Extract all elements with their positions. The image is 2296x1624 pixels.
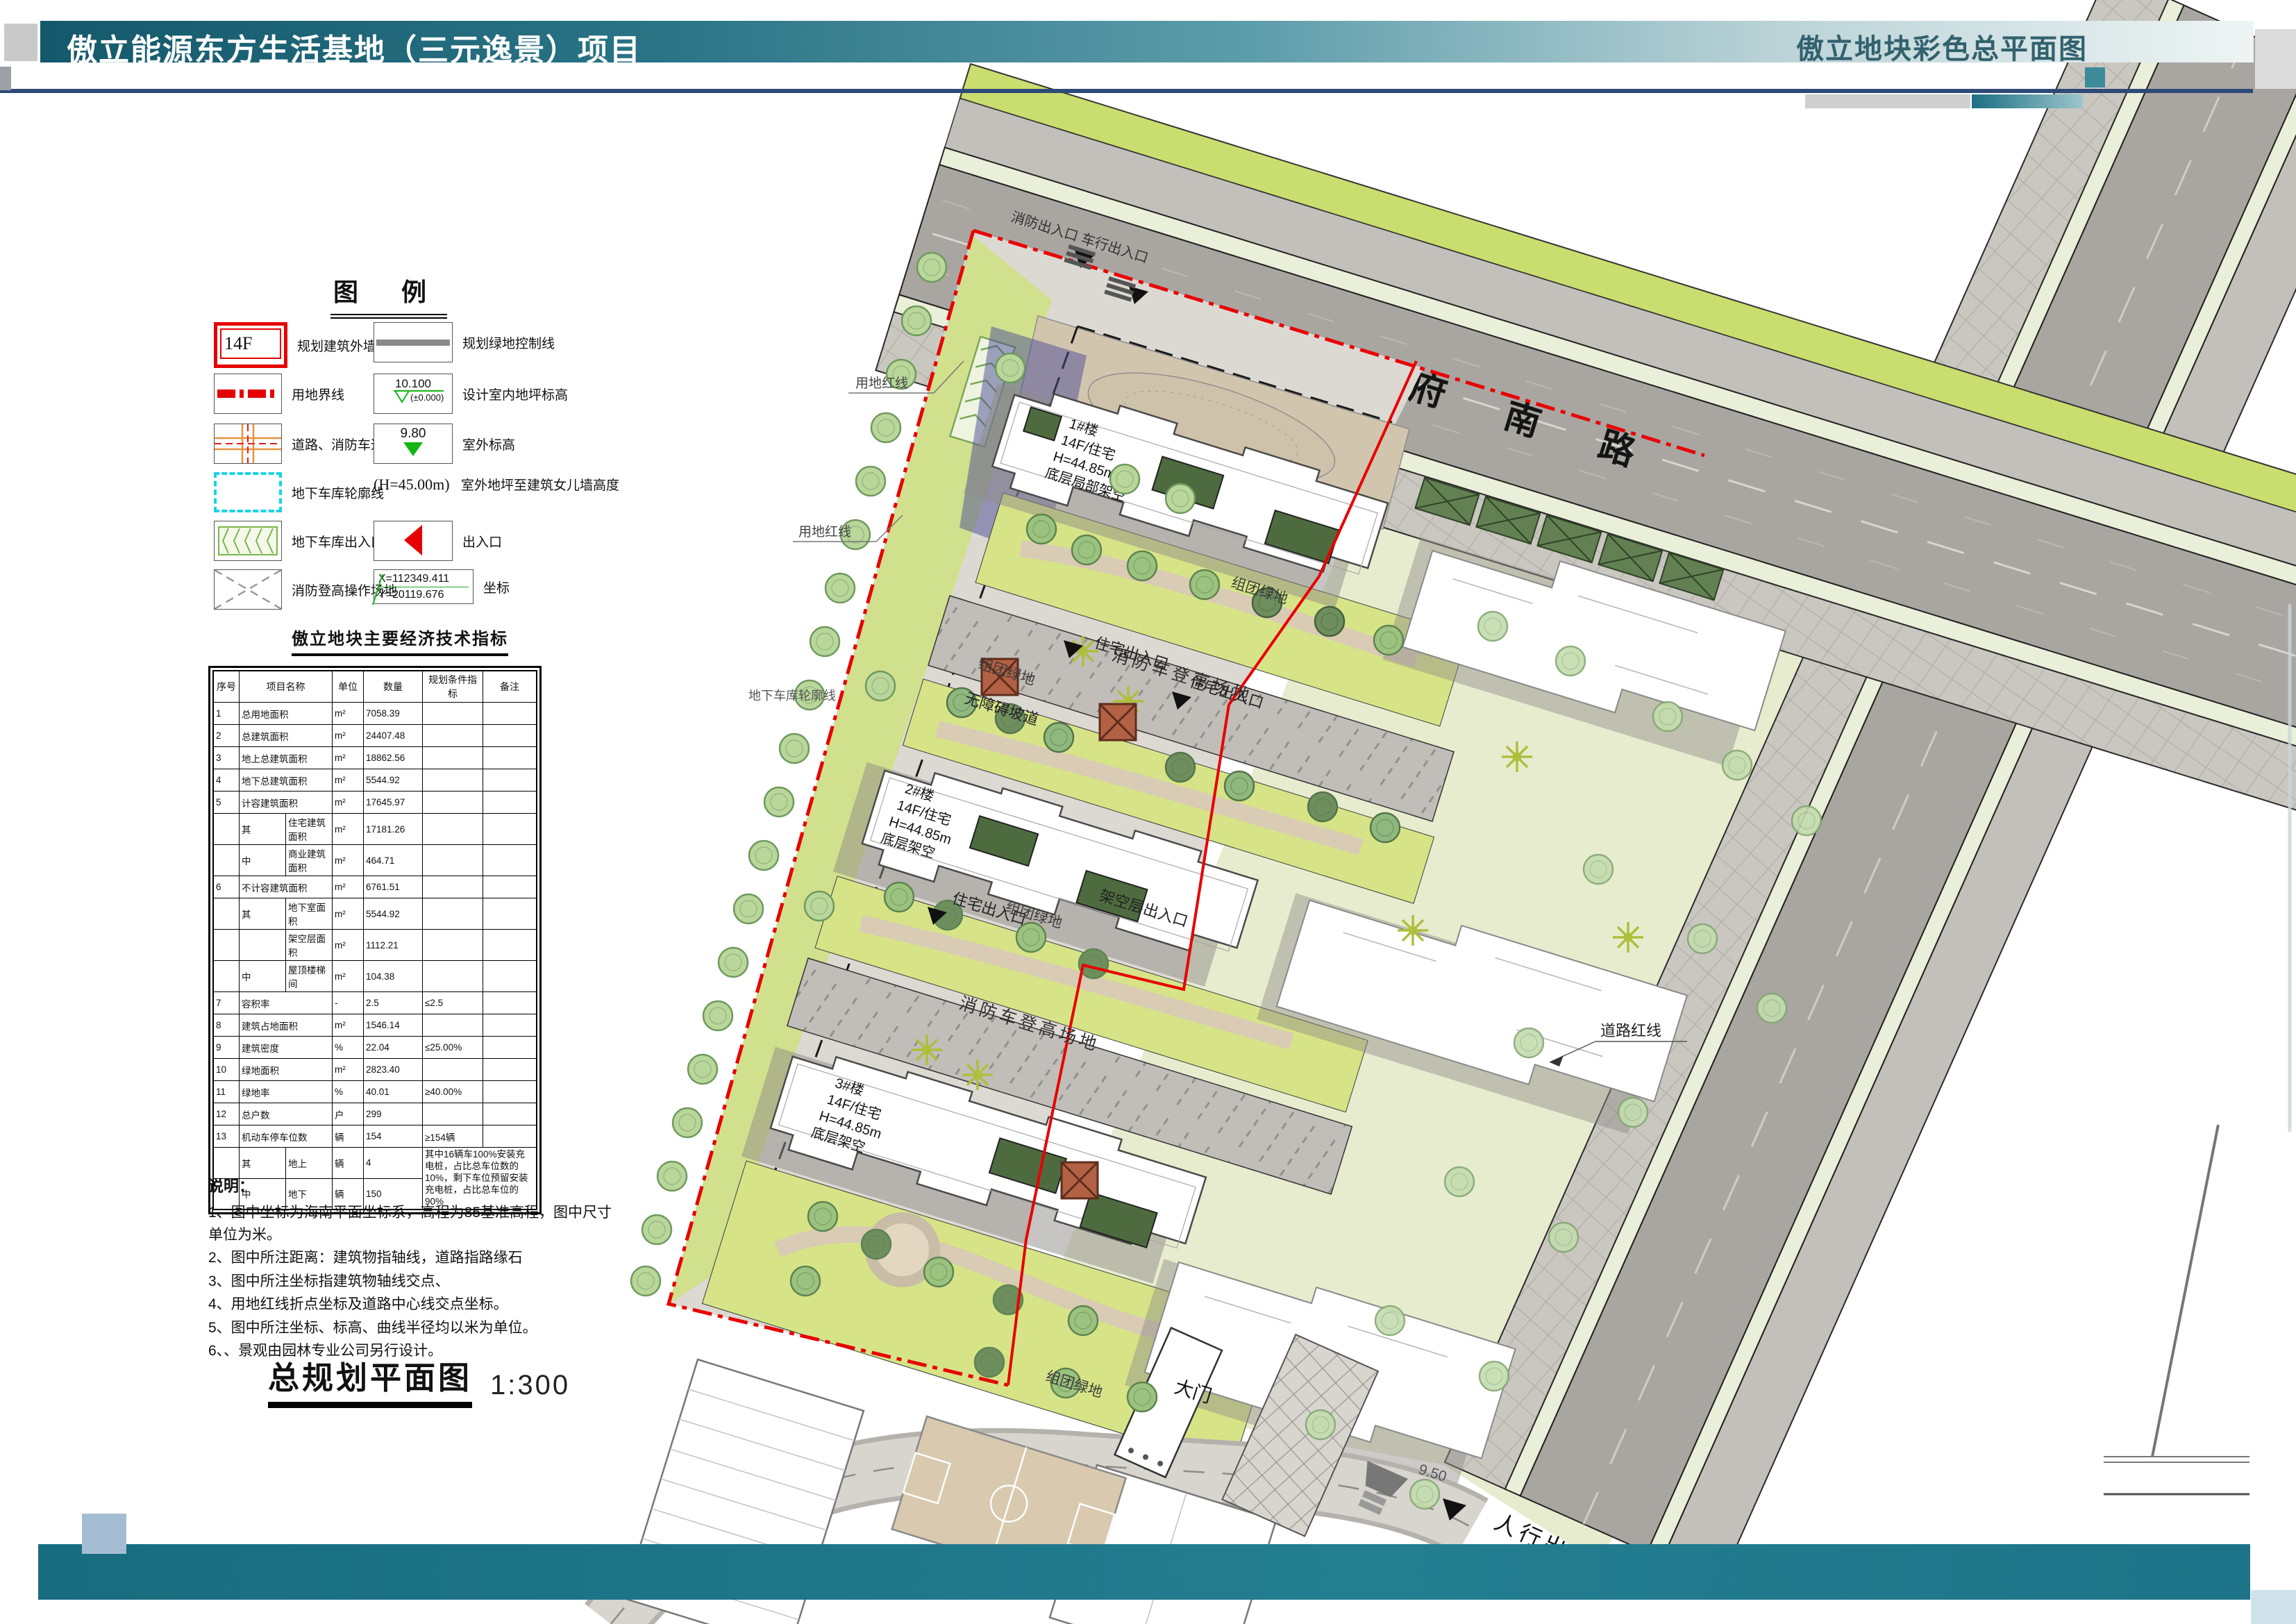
svg-text:(±0.000): (±0.000) <box>410 392 444 403</box>
table-row: 4地下总建筑面积m²5544.92 <box>213 769 537 792</box>
indoor-elevation-swatch: 10.100 (±0.000) <box>374 374 453 414</box>
footer-deco-square-right <box>2251 1590 2296 1624</box>
land-boundary-swatch <box>214 374 282 414</box>
header-accent-square <box>2085 67 2105 87</box>
indicators-panel: 傲立地块主要经济技术指标 序号 项目名称 单位 数量 规划条件指标 备注 1总用… <box>208 625 542 1214</box>
legend-item-indoor-elevation: 10.100 (±0.000) 设计室内地坪标高 <box>374 374 568 414</box>
legend-item-coordinate: X=112349.411 Y=20119.676 坐标 <box>374 569 510 604</box>
table-row: 10绿地面积m²2823.40 <box>213 1059 537 1081</box>
road-fire-lane-swatch <box>214 424 282 464</box>
sheet: 东 府 南 路 <box>0 0 2296 1624</box>
corner-deco-3 <box>2255 29 2296 89</box>
notes-title: 说明： <box>208 1175 625 1198</box>
footer-deco-square-left <box>82 1514 126 1554</box>
table-row: 5计容建筑面积m²17645.97 <box>213 792 537 814</box>
entrance-swatch <box>374 521 453 561</box>
outdoor-elevation-swatch: 9.80 <box>374 424 453 464</box>
header-divider <box>0 89 2253 93</box>
header-strip-gray <box>1805 94 1970 108</box>
table-row: 架空层面积m²1112.21 <box>213 930 537 961</box>
table-row: 2总建筑面积m²24407.48 <box>213 725 537 747</box>
table-row: 其地上辆4其中16辆车100%安装充电桩，占比总车位数的10%，剩下车位预留安装… <box>213 1148 537 1179</box>
note-item: 1、图中坐标为海南平面坐标系，高程为85基准高程，图中尺寸单位为米。 <box>208 1202 625 1246</box>
sheet-title: 傲立地块彩色总平面图 <box>1796 26 2088 67</box>
legend-item-outdoor-elevation: 9.80 室外标高 <box>374 424 515 464</box>
footer-bar <box>38 1544 2250 1600</box>
table-row: 1总用地面积m²7058.39 <box>213 703 537 725</box>
indicators-table: 序号 项目名称 单位 数量 规划条件指标 备注 1总用地面积m²7058.39 … <box>208 666 542 1214</box>
page-title: 傲立能源东方生活基地（三元逸景）项目 <box>67 25 642 69</box>
plan-caption-title: 总规划平面图 <box>268 1353 472 1408</box>
table-row: 11绿地率%40.01≥40.00% <box>213 1081 537 1103</box>
table-row: 其住宅建筑面积m²17181.26 <box>213 814 537 845</box>
note-item: 4、用地红线折点坐标及道路中心线交点坐标。 <box>208 1294 625 1316</box>
note-item: 2、图中所注距离：建筑物指轴线，道路指路缘石 <box>208 1247 625 1269</box>
table-row: 7容积率-2.5≤2.5 <box>213 992 537 1014</box>
table-row: 3地上总建筑面积m²18862.56 <box>213 747 537 769</box>
table-row: 6不计容建筑面积m²6761.51 <box>213 876 537 898</box>
svg-text:用地红线: 用地红线 <box>855 376 908 391</box>
legend-item-entrance: 出入口 <box>374 521 502 561</box>
green-control-swatch <box>374 322 453 362</box>
svg-text:用地红线: 用地红线 <box>798 524 851 539</box>
note-item: 3、图中所注坐标指建筑物轴线交点、 <box>208 1271 625 1293</box>
plan-caption: 总规划平面图 1:300 <box>268 1353 570 1408</box>
note-item: 5、图中所注坐标、标高、曲线半径均以米为单位。 <box>208 1317 625 1339</box>
legend-item-green-control: 规划绿地控制线 <box>374 322 555 362</box>
table-row: 中商业建筑面积m²464.71 <box>213 845 537 876</box>
table-row: 中屋顶楼梯间m²104.38 <box>213 961 537 992</box>
parapet-height-value: (H=45.00m) <box>374 476 451 494</box>
building-outline-swatch: 14F <box>214 322 287 368</box>
garage-entrance-swatch <box>214 521 282 561</box>
legend-item-fire-operation: 消防登高操作场地 <box>214 569 397 610</box>
table-row: 9建筑密度%22.04≤25.00% <box>213 1037 537 1059</box>
legend-item-garage-entrance: 地下车库出入口 <box>214 521 384 561</box>
header-strip-teal <box>1972 94 2083 108</box>
table-row: 8建筑占地面积m²1546.14 <box>213 1014 537 1037</box>
legend-title: 图 例 <box>330 272 447 319</box>
notes-panel: 说明： 1、图中坐标为海南平面坐标系，高程为85基准高程，图中尺寸单位为米。 2… <box>208 1175 625 1364</box>
table-row: 12总户数户299 <box>213 1103 537 1125</box>
legend-item-garage-outline: 地下车库轮廓线 <box>214 472 384 512</box>
table-row: 其地下室面积m²5544.92 <box>213 898 537 930</box>
plan-caption-scale: 1:300 <box>490 1370 570 1408</box>
coordinate-swatch: X=112349.411 Y=20119.676 <box>374 569 474 604</box>
legend-item-land-boundary: 用地界线 <box>214 374 344 414</box>
garage-outline-swatch <box>214 472 282 512</box>
indicators-title: 傲立地块主要经济技术指标 <box>292 625 508 656</box>
corner-deco-1 <box>4 24 37 61</box>
fire-operation-swatch <box>214 569 282 610</box>
svg-text:道路红线: 道路红线 <box>1600 1022 1661 1039</box>
table-header-row: 序号 项目名称 单位 数量 规划条件指标 备注 <box>213 671 537 703</box>
corner-deco-2 <box>0 67 11 90</box>
svg-text:地下车库轮廓线: 地下车库轮廓线 <box>748 689 836 703</box>
table-row: 13机动车停车位数辆154≥154辆 <box>213 1125 537 1148</box>
legend-item-parapet-height: (H=45.00m) 室外地坪至建筑女儿墙高度 <box>374 475 619 494</box>
legend-item-road-fire-lane: 道路、消防车道 <box>214 424 384 464</box>
